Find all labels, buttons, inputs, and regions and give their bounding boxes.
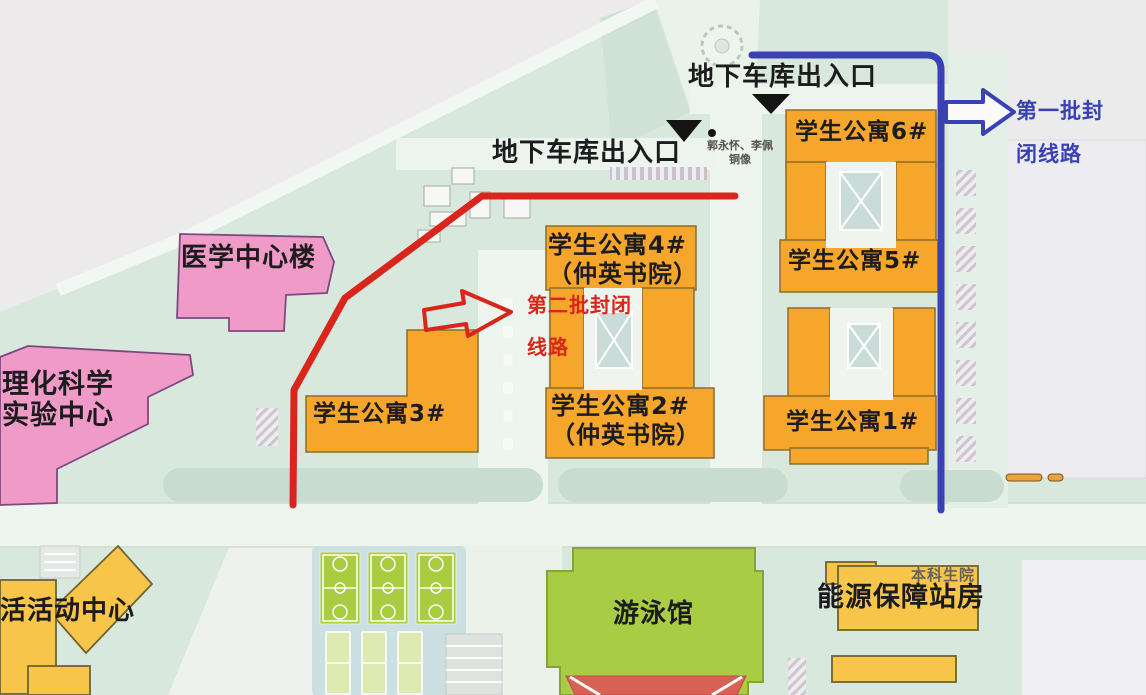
label-activity-center: 活活动中心 — [0, 596, 135, 627]
label-apartment-5: 学生公寓5# — [788, 248, 921, 276]
label-energy-station: 能源保障站房 — [817, 582, 985, 614]
median-green-1 — [163, 468, 543, 502]
median-green-3 — [900, 470, 1004, 502]
label-undergraduate-school: 本科生院 — [911, 566, 975, 584]
statue-dot-icon — [708, 129, 716, 137]
west-parking-hatch — [256, 408, 278, 446]
road-marks — [1006, 474, 1063, 481]
road-vertical-center — [710, 110, 762, 507]
volleyball-courts — [326, 632, 422, 694]
label-swimming-pool: 游泳馆 — [613, 599, 694, 630]
label-statue: 郭永怀、李佩 铜像 — [698, 139, 782, 168]
parking-grid — [446, 634, 502, 695]
offcampus-area-right — [1006, 140, 1146, 478]
campus-map: 地下车库出入口 地下车库出入口 郭永怀、李佩 铜像 学生公寓6# 学生公寓5# … — [0, 0, 1146, 695]
label-apartment-3: 学生公寓3# — [313, 401, 446, 429]
label-apartment-4: 学生公寓4# （仲英书院） — [548, 231, 698, 289]
courtyard-x-1 — [848, 324, 880, 368]
label-medical-center: 医学中心楼 — [181, 243, 316, 274]
label-apartment-2: 学生公寓2# （仲英书院） — [551, 392, 701, 450]
label-apartment-1: 学生公寓1# — [786, 409, 919, 437]
label-apartment-6: 学生公寓6# — [795, 119, 928, 147]
courtyard-x-6-5 — [840, 172, 882, 230]
south-hatch — [788, 658, 806, 695]
label-garage-entrance-top: 地下车库出入口 — [688, 62, 877, 93]
median-green-2 — [558, 468, 788, 502]
label-route-first: 第一批封 闭线路 — [1016, 90, 1104, 176]
label-science-lab: 理化科学 实验中心 — [2, 369, 114, 431]
basketball-courts — [320, 552, 456, 624]
label-garage-entrance-left: 地下车库出入口 — [492, 138, 681, 169]
main-road-bottom — [0, 503, 1146, 547]
label-route-second: 第二批封闭 线路 — [527, 284, 632, 368]
offcampus-area-bottomright — [1022, 560, 1146, 695]
stairs-structure — [40, 546, 80, 578]
